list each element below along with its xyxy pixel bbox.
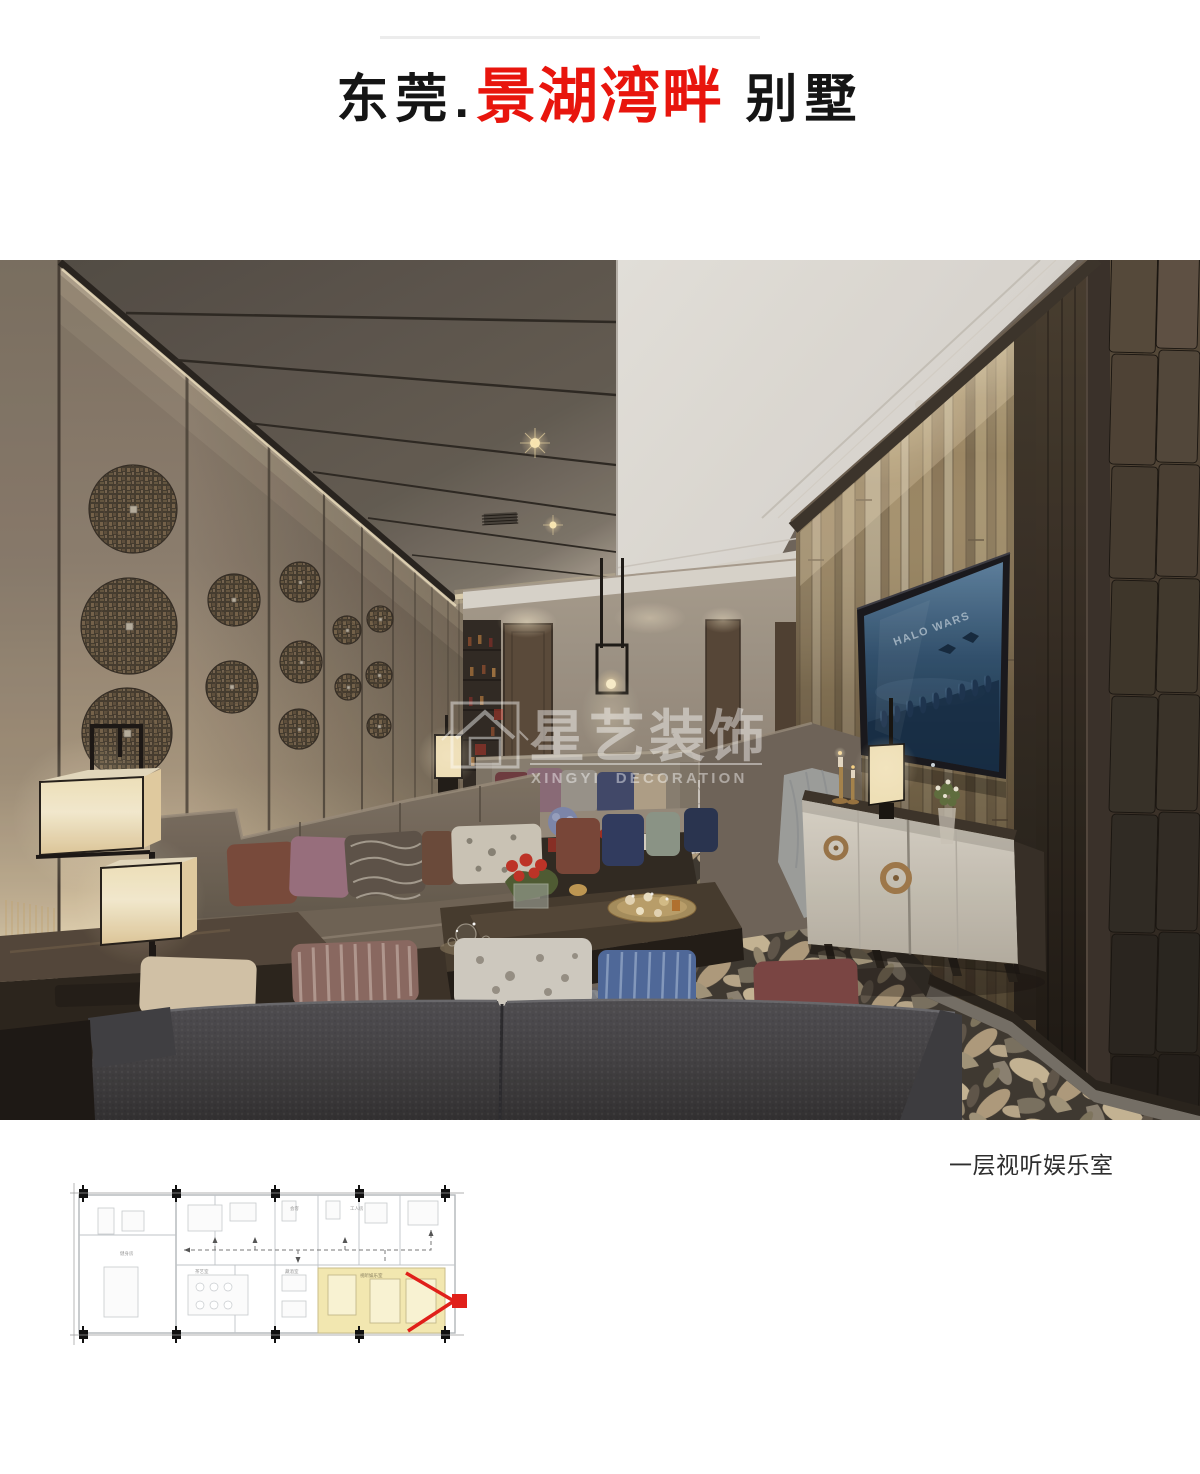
svg-text:星艺装饰: 星艺装饰 xyxy=(529,705,769,768)
svg-text:工人房: 工人房 xyxy=(350,1205,364,1212)
svg-text:会客: 会客 xyxy=(290,1205,299,1212)
svg-text:XINGYI DECORATION: XINGYI DECORATION xyxy=(531,770,748,787)
svg-text:视听娱乐室: 视听娱乐室 xyxy=(360,1272,383,1279)
svg-text:藏酒室: 藏酒室 xyxy=(285,1268,299,1275)
svg-text:健身房: 健身房 xyxy=(120,1250,134,1257)
svg-text:茶艺室: 茶艺室 xyxy=(195,1268,209,1274)
